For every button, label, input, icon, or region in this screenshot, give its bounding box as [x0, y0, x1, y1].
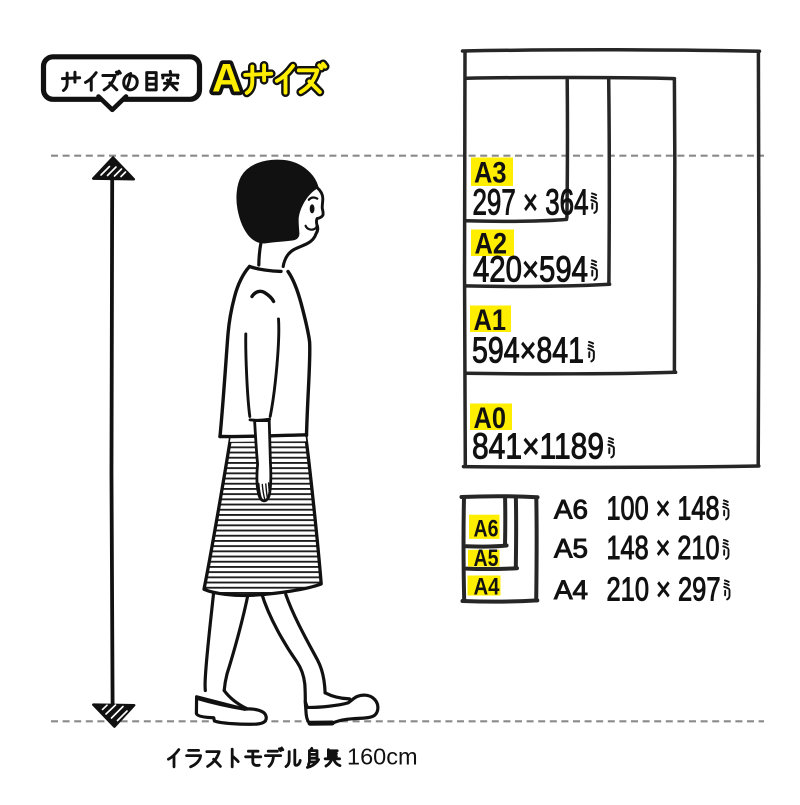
svg-text:100 × 148: 100 × 148 [607, 490, 720, 527]
svg-text:A6: A6 [554, 495, 588, 525]
svg-text:210 × 297: 210 × 297 [607, 571, 721, 608]
svg-text:297 × 364: 297 × 364 [473, 182, 589, 223]
svg-text:A5: A5 [474, 545, 499, 572]
svg-text:841×1189: 841×1189 [472, 426, 604, 467]
svg-text:594×841: 594×841 [472, 330, 584, 371]
svg-text:A: A [212, 57, 241, 101]
svg-text:A5: A5 [554, 534, 588, 564]
svg-text:A4: A4 [474, 574, 501, 601]
svg-text:A6: A6 [474, 516, 499, 543]
svg-text:420×594: 420×594 [473, 249, 588, 290]
svg-text:160cm: 160cm [347, 744, 418, 770]
svg-text:A4: A4 [554, 575, 588, 605]
svg-text:148 × 210: 148 × 210 [607, 529, 720, 566]
